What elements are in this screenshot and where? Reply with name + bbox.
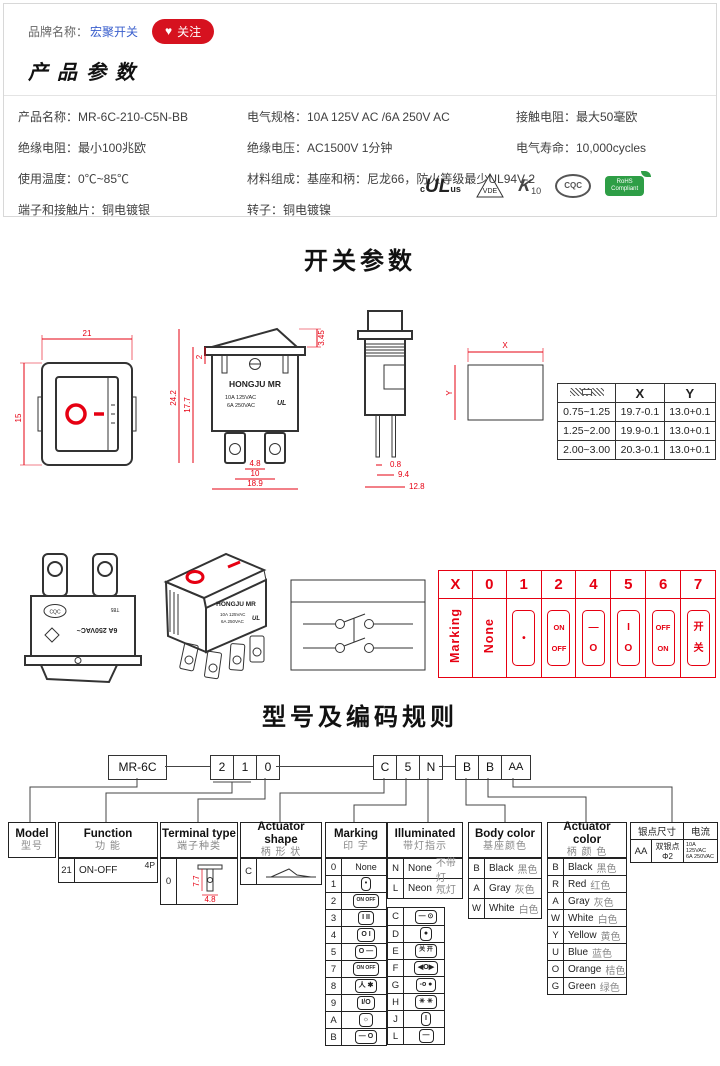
marking-glyph-cell: •	[506, 599, 541, 678]
marking-table-left: Marking 印 字 0None 1• 2ON OFF 3I II 4O I …	[325, 822, 387, 1046]
ul-mark-small: UL	[277, 400, 286, 407]
marking-glyph: ●	[420, 927, 432, 941]
illuminated-row: L Neon氖灯	[388, 878, 462, 898]
cutout-y-label: Y	[445, 390, 454, 396]
marking-glyph: 人 ✱	[355, 979, 378, 993]
terminal-code: 0	[161, 859, 177, 904]
marking-row: 2ON OFF	[326, 892, 386, 909]
actuator-color-row: UBlue蓝色	[548, 943, 626, 960]
code-4: 4	[576, 571, 611, 599]
marking-code: 5	[326, 944, 342, 960]
glyph-top: OFF	[656, 623, 671, 631]
shape-header: Actuator shape 柄 形 状	[241, 823, 321, 858]
actuator-color-row: GGreen绿色	[548, 977, 626, 994]
illuminated-cn: 不带灯	[436, 854, 462, 884]
product-params-title: 产品参数	[28, 56, 144, 85]
panel-cutout-drawing: X Y	[443, 330, 559, 446]
silver-desc: 双银点 Φ2	[652, 840, 684, 863]
color-code: Y	[548, 927, 564, 943]
dim-pin-width: 0.8	[390, 460, 402, 469]
actuator-color-row: RRed红色	[548, 875, 626, 892]
model-table: Model 型号	[8, 822, 56, 858]
rohs-line1: RoHS	[617, 179, 633, 185]
marking-row-label: Marking	[448, 608, 462, 663]
code-x: X	[439, 571, 473, 599]
marking-code: J	[388, 1011, 404, 1027]
panel-thickness-icon	[558, 384, 616, 403]
actuator-color-row: BBlack黑色	[548, 858, 626, 875]
marking-none-cell: None	[472, 599, 506, 678]
marking-code: 0	[326, 859, 342, 875]
silver-size-header: 银点尺寸	[631, 823, 684, 840]
certification-logos: cULus VDE K10 CQC RoHS Compliant	[420, 172, 644, 200]
marking-row: 9I/O	[326, 994, 386, 1011]
marking-glyph: ✳ ✳	[415, 995, 437, 1009]
rating-line1: 10A 125VAC	[220, 612, 246, 617]
color-cn: 蓝色	[592, 945, 612, 960]
table-row: 1.25~2.00 19.9-0.1 13.0+0.1	[558, 422, 716, 441]
glyph-bottom: 关	[693, 644, 703, 652]
terminal-header: Terminal type 端子种类	[161, 823, 237, 858]
code-6: 6	[646, 571, 681, 599]
follow-label: 关注	[177, 23, 201, 40]
header-cn: 柄 颜 色	[548, 847, 626, 859]
marking-glyph-cell: ONOFF	[541, 599, 576, 678]
cqc-mark: CQC	[49, 610, 61, 616]
silver-point-table: 银点尺寸 电流 AA 双银点 Φ2 10A 125VAC 6A 250VAC	[630, 822, 718, 863]
terminal-row: 0 7.7 4.8	[161, 858, 237, 904]
dim-top-offset: 2	[195, 354, 204, 359]
brand-mark: HONGJU MR	[229, 379, 281, 389]
color-code: R	[548, 876, 564, 892]
shape-code: C	[241, 859, 257, 884]
color-code: U	[548, 944, 564, 960]
function-value-cell: ON-OFF	[75, 865, 145, 876]
brand-mark: HONGJU MR	[216, 601, 256, 608]
glyph-top: ON	[553, 623, 564, 631]
function-header: Function 功 能	[59, 823, 157, 858]
header-cn: 带灯指示	[388, 841, 462, 853]
dim-terminal-gap: 4.8	[249, 459, 261, 468]
color-cn: 灰色	[594, 894, 614, 909]
marking-row: JI	[388, 1010, 444, 1027]
marking-row: B— O	[326, 1028, 386, 1045]
marking-code: C	[388, 908, 404, 925]
function-code: 21	[59, 859, 75, 882]
marking-row: C— ⊙	[388, 908, 444, 925]
switch-top-view-drawing: 21 15	[12, 325, 164, 487]
marking-glyph: O I	[357, 928, 374, 942]
color-en: Gray	[568, 896, 590, 907]
code-1: 1	[506, 571, 541, 599]
shape-row: C	[241, 858, 321, 884]
marking-row: 4O I	[326, 926, 386, 943]
silver-current: 10A 125VAC 6A 250VAC	[684, 840, 718, 863]
actuator-color-table: Actuator color 柄 颜 色 BBlack黑色 RRed红色 AGr…	[547, 822, 627, 995]
table-row: X Y	[558, 384, 716, 403]
marking-code: 1	[326, 876, 342, 892]
illuminated-cn: 氖灯	[436, 881, 456, 896]
marking-row: 5O —	[326, 943, 386, 960]
color-code: A	[548, 893, 564, 909]
rating-line2: 6A 250VAC	[227, 403, 255, 409]
rating-line2: 6A 250VAC	[221, 619, 245, 624]
actuator-shape-table: Actuator shape 柄 形 状 C	[240, 822, 322, 885]
rohs-line2: Compliant	[611, 186, 638, 192]
dim-width: 21	[83, 329, 92, 338]
code-0: 0	[472, 571, 506, 599]
vde-cert-icon: VDE	[475, 172, 505, 200]
vde-text: VDE	[483, 188, 498, 195]
marking-glyph: None	[342, 862, 386, 872]
dim-height: 15	[14, 413, 23, 422]
marking-code: 9	[326, 995, 342, 1011]
marking-glyph: 关 开	[415, 944, 437, 958]
marking-row: 1•	[326, 875, 386, 892]
marking-glyph: -o ●	[416, 978, 437, 992]
color-en: White	[568, 913, 594, 924]
terminal-type-table: Terminal type 端子种类 0 7.7 4.8	[160, 822, 238, 905]
marking-glyphs-row: Marking None • ONOFF —O IO OFFON 开关	[439, 599, 716, 678]
marking-glyph: ON OFF	[353, 962, 380, 976]
col-x-header: X	[616, 384, 664, 403]
marking-code: L	[388, 1028, 404, 1044]
dim-depth: 12.8	[409, 482, 425, 491]
dim-rocker-height: 3.45	[317, 330, 326, 346]
code-5: 5	[611, 571, 646, 599]
dim-body-width: 18.9	[247, 479, 263, 488]
dim-total-height: 24.2	[169, 390, 178, 406]
follow-button[interactable]: ♥ 关注	[152, 19, 214, 44]
marking-table-right: C— ⊙ D● E关 开 F◀O▶ G-o ● H✳ ✳ JI L—	[387, 907, 445, 1045]
marking-code: 7	[326, 961, 342, 977]
ul-cert-icon: cULus	[420, 177, 461, 196]
col-y-header: Y	[664, 384, 715, 403]
body-color-header: Body color 基座颜色	[469, 823, 541, 858]
spec-electrical-rating: 电气规格：10A 125V AC /6A 250V AC	[247, 102, 517, 133]
model-header: Model 型号	[9, 823, 55, 857]
spec-operating-temp: 使用温度：0℃~85℃	[18, 164, 246, 195]
glyph-bottom: O	[589, 644, 597, 652]
marking-code: 3	[326, 910, 342, 926]
product-detail-page: 品牌名称： 宏聚开关 ♥ 关注 产品参数 产品名称：MR-6C-210-C5N-…	[0, 0, 720, 1066]
illuminated-code: N	[388, 859, 404, 878]
actuator-color-row: WWhite白色	[548, 909, 626, 926]
spec-column-3: 接触电阻：最大50毫欧 电气寿命：10,000cycles	[516, 102, 716, 164]
marking-glyph: — ⊙	[415, 910, 438, 924]
color-en: Blue	[568, 947, 588, 958]
terminal-drawing-icon: 7.7 4.8	[186, 861, 232, 903]
marking-code: 4	[326, 927, 342, 943]
marking-glyph: ◀O▶	[414, 961, 438, 975]
cutout-dimension-table: X Y 0.75~1.25 19.7-0.1 13.0+0.1 1.25~2.0…	[557, 383, 716, 460]
marking-codes-row: X 0 1 2 4 5 6 7	[439, 571, 716, 599]
terminal-dim-v: 7.7	[192, 874, 201, 886]
marking-glyph: •	[361, 877, 371, 891]
terminal-dim-h: 4.8	[204, 895, 216, 903]
current-header: 电流	[684, 823, 718, 840]
color-cn: 绿色	[600, 979, 620, 994]
actuator-color-header: Actuator color 柄 颜 色	[548, 823, 626, 858]
product-params-card: 品牌名称： 宏聚开关 ♥ 关注 产品参数 产品名称：MR-6C-210-C5N-…	[3, 3, 717, 217]
color-cn: 黑色	[596, 860, 616, 875]
thickness-range: 0.75~1.25	[558, 403, 616, 422]
glyph-top: I	[627, 623, 630, 631]
color-code: O	[548, 961, 564, 977]
glyph-bottom: O	[624, 644, 632, 652]
marking-glyph: I II	[358, 911, 374, 925]
thickness-range: 1.25~2.00	[558, 422, 616, 441]
enec-num: 10	[531, 186, 541, 196]
y-value: 13.0+0.1	[664, 441, 715, 460]
marking-glyph: I/O	[357, 996, 374, 1010]
marking-none-label: None	[482, 618, 496, 653]
marking-code: F	[388, 960, 404, 976]
illuminated-en: Neon	[408, 883, 432, 894]
glyph-bottom: ON	[658, 644, 669, 652]
marking-glyph-cell: IO	[611, 599, 646, 678]
shape-icon-cell	[257, 864, 321, 880]
illuminated-code: L	[388, 879, 404, 898]
spec-column-2: 电气规格：10A 125V AC /6A 250V AC 绝缘电压：AC1500…	[247, 102, 517, 226]
color-code: B	[469, 859, 485, 878]
marking-row: E关 开	[388, 942, 444, 959]
thickness-range: 2.00~3.00	[558, 441, 616, 460]
brand-label: 品牌名称：	[28, 23, 88, 40]
marking-code: G	[388, 977, 404, 993]
color-cn: 灰色	[515, 881, 535, 896]
cutout-x-label: X	[502, 341, 508, 350]
glyph-bottom: OFF	[551, 644, 566, 652]
marking-row: 8人 ✱	[326, 977, 386, 994]
color-cn: 红色	[590, 877, 610, 892]
body-color-row: WWhite白色	[469, 898, 541, 918]
ul-us: us	[450, 183, 461, 196]
marking-glyph-cell: OFFON	[646, 599, 681, 678]
header-en: Actuator shape	[241, 821, 321, 847]
marking-code-strip: X 0 1 2 4 5 6 7 Marking None • ONOFF —O …	[438, 570, 716, 678]
body-color-row: BBlack黑色	[469, 858, 541, 878]
spec-insulation-resistance: 绝缘电阻：最小100兆欧	[18, 133, 246, 164]
actuator-color-row: YYellow黄色	[548, 926, 626, 943]
marking-code: H	[388, 994, 404, 1010]
glyph-top: —	[588, 623, 598, 631]
color-en: White	[489, 903, 515, 914]
header-cn: 型号	[9, 841, 55, 853]
brand-row: 品牌名称： 宏聚开关 ♥ 关注	[28, 18, 214, 44]
color-en: Gray	[489, 883, 511, 894]
color-code: W	[469, 899, 485, 918]
spec-contact-resistance: 接触电阻：最大50毫欧	[516, 102, 716, 133]
illuminated-table: Illuminated 带灯指示 N None不带灯 L Neon氖灯	[387, 822, 463, 899]
marking-glyph: — O	[355, 1030, 377, 1044]
header-cn: 基座颜色	[469, 841, 541, 853]
ul-mark: UL	[425, 177, 450, 196]
actuator-color-row: OOrange桔色	[548, 960, 626, 977]
color-en: Orange	[568, 964, 601, 975]
code-7: 7	[681, 571, 716, 599]
marking-code: B	[326, 1029, 342, 1045]
marking-glyph: —	[419, 1029, 434, 1043]
spec-product-name: 产品名称：MR-6C-210-C5N-BB	[18, 102, 246, 133]
marking-row: D●	[388, 925, 444, 942]
function-table: Function 功 能 21 ON-OFF 4P	[58, 822, 158, 883]
spec-insulation-voltage: 绝缘电压：AC1500V 1分钟	[247, 133, 517, 164]
color-code: B	[548, 859, 564, 875]
function-poles: 4P	[145, 859, 157, 870]
rating-line1: 10A 125VAC	[225, 395, 256, 401]
switch-3d-photo: HONGJU MR 10A 125VAC 6A 250VAC UL	[148, 540, 278, 696]
actuator-color-row: AGray灰色	[548, 892, 626, 909]
marking-glyph: ON OFF	[353, 894, 380, 908]
function-value: ON-OFF	[79, 865, 117, 876]
header-cn: 柄 形 状	[241, 847, 321, 859]
switch-back-photo: CQC 6A 250VAC~ T85	[15, 548, 151, 694]
marking-row-label-cell: Marking	[439, 599, 473, 678]
rohs-cert-icon: RoHS Compliant	[605, 176, 644, 196]
color-en: Green	[568, 981, 596, 992]
marking-row: G-o ●	[388, 976, 444, 993]
marking-row: 3I II	[326, 909, 386, 926]
header-en: Model	[9, 828, 55, 841]
x-value: 19.9-0.1	[616, 422, 664, 441]
table-row: 0.75~1.25 19.7-0.1 13.0+0.1	[558, 403, 716, 422]
body-color-row: AGray灰色	[469, 878, 541, 898]
color-en: Black	[568, 862, 592, 873]
switch-front-view-drawing: HONGJU MR 10A 125VAC 6A 250VAC UL 3.45 2…	[165, 303, 335, 499]
marking-glyph: I	[421, 1012, 431, 1026]
color-en: Red	[568, 879, 586, 890]
marking-row: L—	[388, 1027, 444, 1044]
header-en: Body color	[469, 828, 541, 841]
marking-code: 8	[326, 978, 342, 994]
rocker-profile-icon	[263, 864, 319, 880]
silver-body-row: AA 双银点 Φ2 10A 125VAC 6A 250VAC	[631, 840, 718, 863]
terminal-icon-cell: 7.7 4.8	[177, 861, 237, 903]
dim-pin-pitch: 9.4	[398, 470, 410, 479]
rating-rotated: 6A 250VAC~	[77, 626, 118, 633]
marking-code: E	[388, 943, 404, 959]
x-value: 20.3-0.1	[616, 441, 664, 460]
spec-column-1: 产品名称：MR-6C-210-C5N-BB 绝缘电阻：最小100兆欧 使用温度：…	[18, 102, 246, 226]
header-en: Illuminated	[388, 828, 462, 841]
spec-electrical-life: 电气寿命：10,000cycles	[516, 133, 716, 164]
color-code: G	[548, 978, 564, 994]
body-color-table: Body color 基座颜色 BBlack黑色 AGray灰色 WWhite白…	[468, 822, 542, 919]
marking-row: F◀O▶	[388, 959, 444, 976]
function-row: 21 ON-OFF 4P	[59, 858, 157, 882]
dim-terminal-pitch: 10	[251, 469, 260, 478]
switch-side-view-drawing: 0.8 9.4 12.8	[332, 303, 438, 495]
color-cn: 黄色	[601, 928, 621, 943]
marking-row: A☼	[326, 1011, 386, 1028]
brand-name-link[interactable]: 宏聚开关	[90, 23, 138, 40]
circuit-schematic	[283, 572, 433, 677]
y-value: 13.0+0.1	[664, 403, 715, 422]
marking-glyph: ☼	[359, 1013, 373, 1027]
x-value: 19.7-0.1	[616, 403, 664, 422]
header-en: Actuator color	[548, 821, 626, 847]
t85-mark: T85	[110, 606, 119, 612]
header-en: Function	[59, 828, 157, 841]
header-en: Terminal type	[161, 828, 237, 841]
spec-terminal-plating: 端子和接触片：铜电镀银	[18, 195, 246, 226]
switch-params-title: 开关参数	[0, 241, 720, 276]
color-en: Black	[489, 863, 513, 874]
marking-header: Marking 印 字	[326, 823, 386, 858]
marking-glyph-cell: —O	[576, 599, 611, 678]
illuminated-row: N None不带灯	[388, 858, 462, 878]
marking-row: 0None	[326, 858, 386, 875]
code-2: 2	[541, 571, 576, 599]
current-line1: 10A 125VAC	[686, 842, 706, 854]
header-en: Marking	[326, 828, 386, 841]
header-cn: 端子种类	[161, 841, 237, 853]
header-cn: 印 字	[326, 841, 386, 853]
marking-glyph: O —	[355, 945, 377, 959]
enec-cert-icon: K10	[519, 176, 541, 196]
silver-code: AA	[631, 840, 652, 863]
color-en: Yellow	[568, 930, 597, 941]
color-cn: 白色	[519, 901, 539, 916]
glyph-dot: •	[522, 634, 526, 642]
heart-icon: ♥	[165, 24, 172, 38]
silver-header-row: 银点尺寸 电流	[631, 823, 718, 840]
marking-row: H✳ ✳	[388, 993, 444, 1010]
y-value: 13.0+0.1	[664, 422, 715, 441]
coding-rules-title: 型号及编码规则	[0, 697, 720, 732]
dim-body-height: 17.7	[183, 397, 192, 413]
color-code: A	[469, 879, 485, 898]
marking-code: A	[326, 1012, 342, 1028]
illuminated-en: None	[408, 863, 432, 874]
cqc-cert-icon: CQC	[555, 174, 591, 198]
marking-code: D	[388, 926, 404, 942]
marking-row: 7ON OFF	[326, 960, 386, 977]
color-cn: 桔色	[605, 962, 625, 977]
divider	[4, 95, 716, 96]
coding-connector-lines	[0, 745, 720, 825]
current-line2: 6A 250VAC	[686, 854, 714, 860]
ul-mark-small: UL	[252, 616, 260, 622]
color-code: W	[548, 910, 564, 926]
marking-code: 2	[326, 893, 342, 909]
marking-glyph-cell: 开关	[681, 599, 716, 678]
color-cn: 白色	[598, 911, 618, 926]
table-row: 2.00~3.00 20.3-0.1 13.0+0.1	[558, 441, 716, 460]
header-cn: 功 能	[59, 841, 157, 853]
glyph-top: 开	[693, 623, 703, 631]
color-cn: 黑色	[517, 861, 537, 876]
